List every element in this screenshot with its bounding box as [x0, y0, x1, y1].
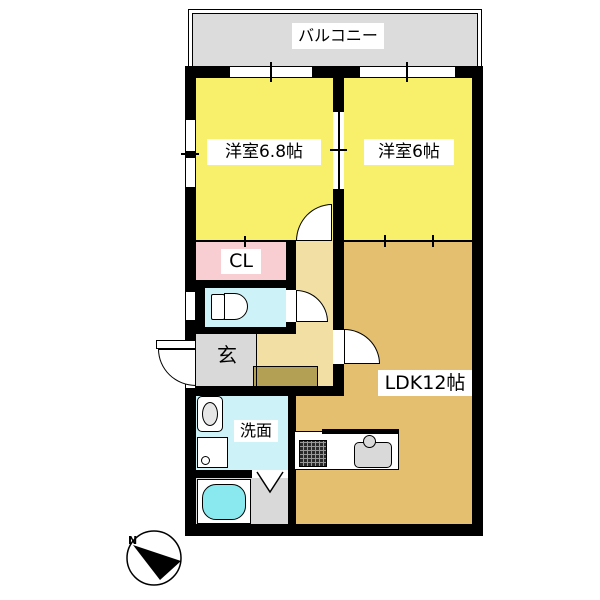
room2-ldk-tick-2 — [432, 235, 434, 247]
wall-bottom — [185, 524, 483, 536]
closet-door-tick — [244, 236, 246, 247]
washroom-label: 洗面 — [234, 420, 278, 442]
left-window-lower — [186, 158, 195, 187]
washer-drain-icon — [201, 456, 210, 465]
closet-top-line — [196, 240, 286, 242]
wall-toilet-top — [196, 280, 296, 288]
ldk-door-opening — [333, 330, 344, 364]
kitchen-counter-edge — [322, 429, 399, 434]
wall-bathroom-top — [196, 470, 252, 478]
entrance-step — [253, 366, 318, 388]
left-window-upper — [186, 120, 195, 151]
toilet-door-opening — [286, 290, 296, 322]
bathtub-icon — [202, 484, 246, 520]
floor-plan: バルコニー 洋室6.8帖 洋室6帖 CL 玄 洗面 LDK12帖 N — [0, 0, 600, 600]
wall-room-divider-upper — [333, 66, 344, 113]
faucet-icon — [363, 435, 376, 448]
wall-toilet-bottom — [196, 327, 296, 334]
western-room-2-label: 洋室6帖 — [364, 139, 454, 165]
balcony-label: バルコニー — [292, 23, 384, 49]
wall-room-divider-lower — [333, 188, 344, 396]
wall-washroom-top — [185, 386, 344, 396]
wall-toilet-left — [196, 288, 205, 327]
room2-ldk-partition-line — [344, 240, 472, 242]
entry-door-leaf — [156, 340, 196, 349]
ldk-label: LDK12帖 — [378, 370, 472, 396]
closet-label: CL — [221, 249, 261, 274]
compass-icon: N — [124, 528, 186, 590]
entrance-label: 玄 — [211, 341, 243, 369]
western-room-1-label: 洋室6.8帖 — [207, 139, 321, 165]
toilet-tank-icon — [211, 294, 225, 320]
stove-icon — [299, 440, 327, 467]
left-window-tick — [181, 153, 199, 155]
balcony-window-1-tick — [270, 62, 272, 82]
wall-right — [472, 66, 483, 536]
room2-ldk-tick-1 — [384, 235, 386, 247]
balcony-window-2-tick — [406, 62, 408, 82]
washbasin-bowl-icon — [202, 402, 218, 426]
entry-door-arc — [158, 349, 196, 386]
room-partition-tick — [330, 149, 347, 151]
compass-north-label: N — [128, 534, 137, 547]
entrance-hall-boundary — [256, 334, 257, 386]
bathroom-folding-door-icon — [254, 470, 288, 496]
toilet-window — [186, 292, 195, 320]
